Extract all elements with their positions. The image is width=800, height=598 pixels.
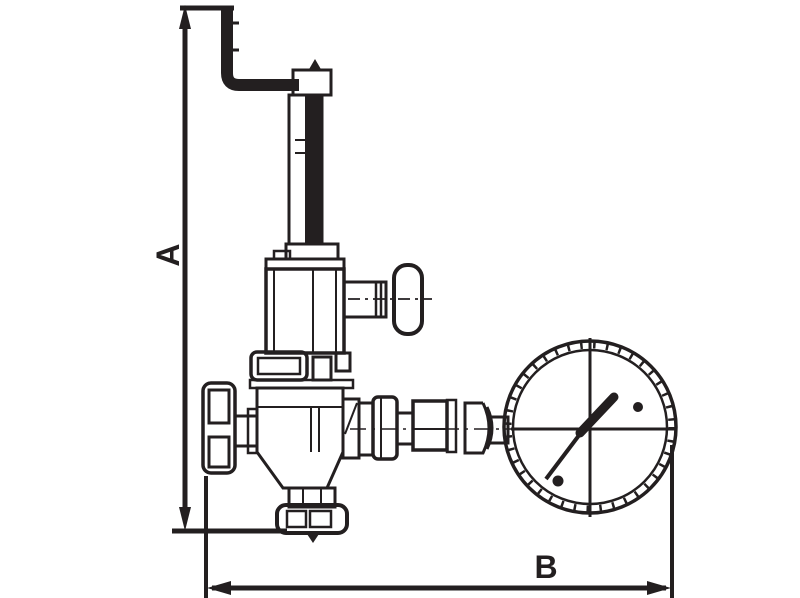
valve-assembly (203, 8, 676, 543)
handwheel-spoke-bottom (209, 437, 229, 467)
valve-technical-drawing: A B (0, 0, 800, 598)
adjusting-stem (286, 59, 338, 259)
dimension-b-label: B (534, 549, 557, 585)
gauge-needle-tail (546, 430, 583, 479)
stem-locknut (286, 244, 338, 259)
handwheel-spoke-top (209, 390, 229, 423)
valve-body (235, 388, 343, 488)
arrowhead-down-icon (179, 507, 191, 531)
housing-shell (266, 269, 344, 353)
drawing-canvas: A B (0, 0, 800, 598)
bonnet-flange (250, 352, 353, 388)
drain-cap-inner (310, 511, 331, 527)
arrowhead-right-icon (647, 581, 671, 595)
dimension-a-label: A (150, 243, 186, 266)
drain-cap-inner (287, 511, 306, 527)
union-nut (373, 397, 397, 459)
side-handle-tee (344, 265, 432, 334)
drain-spout-tip (307, 534, 319, 543)
flange-plate (251, 352, 307, 380)
gauge-dial-dot (633, 402, 643, 412)
arrowhead-left-icon (207, 581, 231, 595)
flange-plate-inner (258, 358, 300, 374)
inlet-boss (235, 416, 257, 446)
spring-housing (266, 251, 344, 353)
relief-pipe (227, 8, 299, 85)
pipe-bend (227, 8, 299, 85)
flange-bolt-boss (336, 353, 350, 371)
flange-bolt-boss (313, 357, 331, 380)
gauge-needle-hub-dot (553, 476, 564, 487)
coupling-body (465, 403, 489, 453)
pressure-gauge (504, 338, 676, 517)
stem-thread-shading (305, 95, 322, 244)
gauge-connection (343, 397, 512, 459)
body-outline (257, 388, 343, 488)
hex-fitting (413, 401, 447, 450)
inlet-handwheel (203, 383, 235, 473)
drain-outlet (277, 488, 347, 543)
